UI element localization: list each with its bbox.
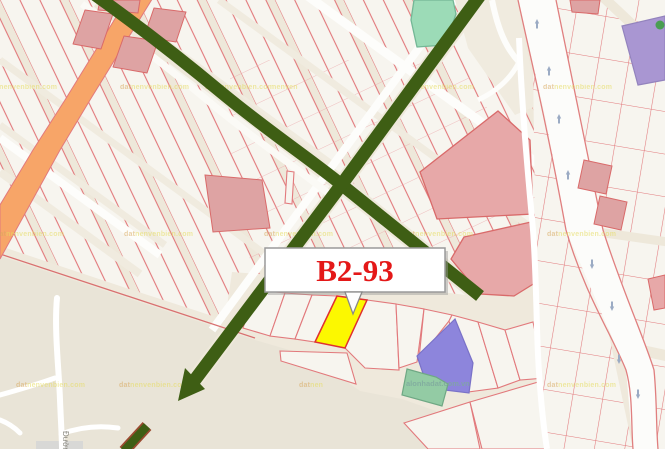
svg-text:datnenvenbien.com: datnenvenbien.com [119, 382, 188, 389]
svg-text:datnenvenbien.com: datnenvenbien.com [547, 382, 616, 389]
svg-text:datnenvenbien.com: datnenvenbien.com [0, 84, 57, 91]
svg-text:alonhadat.com.vn: alonhadat.com.vn [406, 379, 470, 388]
svg-text:nenven: nenven [272, 84, 298, 91]
svg-text:datnenvenbien.com: datnenvenbien.com [543, 84, 612, 91]
svg-text:datnenvenbien.com: datnenvenbien.com [124, 231, 193, 238]
svg-text:datnen: datnen [299, 382, 323, 389]
svg-text:B2-93: B2-93 [316, 253, 394, 288]
svg-text:datnenvenbien.com: datnenvenbien.com [16, 382, 85, 389]
svg-text:Đường: Đường [61, 431, 70, 449]
svg-text:datnenvenbien.com: datnenvenbien.com [120, 84, 189, 91]
svg-text:datnenvenbien.com: datnenvenbien.com [547, 231, 616, 238]
svg-text:datnenvenbien.com: datnenvenbien.com [0, 231, 64, 238]
